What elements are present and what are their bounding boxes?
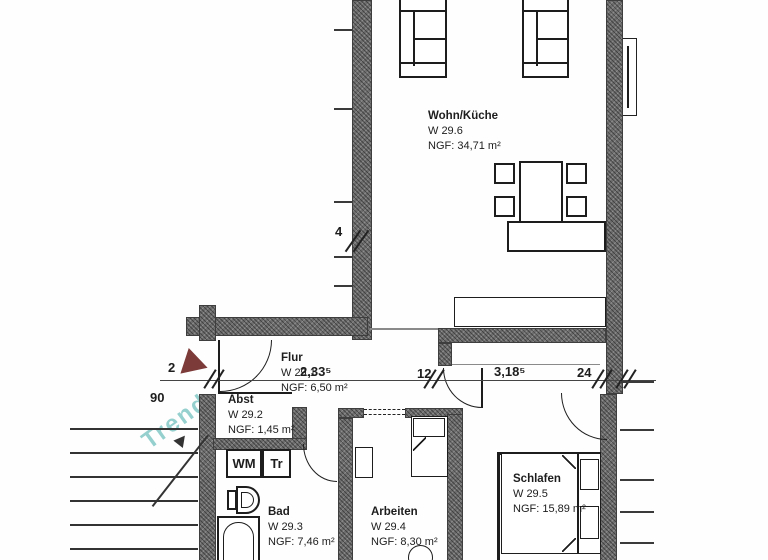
room-area: NGF: 34,71 m²	[428, 139, 501, 154]
floor-plan: Trend 2 90 2,33⁵ 12 3,18⁵ 24 4	[0, 0, 768, 560]
bad-door-arc	[303, 444, 337, 482]
stair-tread	[70, 500, 198, 502]
armchair-icon	[399, 0, 447, 78]
dim-wall-a: 12	[417, 366, 431, 381]
wall-tick	[334, 285, 352, 287]
room-code: W 29.2	[228, 408, 295, 423]
entry-door-arc	[220, 340, 272, 392]
wall-bad-arbeiten	[338, 418, 353, 560]
wall-left-lower	[199, 394, 216, 560]
sideboard	[507, 221, 606, 252]
room-label-wohnkueche: Wohn/Küche W 29.6 NGF: 34,71 m²	[428, 109, 501, 154]
entry-door-leaf	[218, 340, 220, 393]
stair-tread	[70, 476, 198, 478]
kitchen-counter	[454, 297, 606, 327]
room-name: Arbeiten	[371, 505, 438, 520]
dining-chair	[566, 163, 587, 184]
wall-tick	[620, 542, 654, 544]
room-area: NGF: 7,46 m²	[268, 535, 335, 550]
bed-fold	[413, 437, 426, 451]
wall-tick	[620, 381, 654, 383]
dimension-line	[160, 380, 656, 381]
room-name: Abst	[228, 393, 295, 408]
radiator-inner-line	[627, 46, 629, 108]
wall-tick	[334, 29, 352, 31]
wall-living-left	[352, 0, 372, 340]
wall-tick	[334, 256, 352, 258]
room-name: Wohn/Küche	[428, 109, 501, 124]
washing-machine-box: WM	[226, 449, 262, 478]
threshold-line	[370, 328, 438, 330]
dim-entry: 2	[168, 360, 175, 375]
room-label-arbeiten: Arbeiten W 29.4 NGF: 8,30 m²	[371, 505, 438, 550]
dim-corridor-width: 3,18⁵	[494, 364, 525, 379]
wall-tick	[620, 479, 654, 481]
dim-wall-b: 24	[577, 365, 591, 380]
wall-living-south	[438, 328, 606, 343]
wall-flur-south-1	[338, 408, 364, 418]
wall-tick	[620, 429, 654, 431]
schlafen-door-arc	[561, 393, 607, 440]
stair-tread	[70, 428, 198, 430]
corridor-door-leaf	[481, 368, 483, 408]
dashed-wall-line	[364, 409, 405, 410]
dryer-label: Tr	[270, 456, 282, 471]
wardrobe-arbeiten	[355, 447, 373, 478]
stair-tread	[70, 452, 198, 454]
room-area: NGF: 8,30 m²	[371, 535, 438, 550]
dining-table	[519, 161, 563, 223]
room-name: Schlafen	[513, 472, 586, 487]
bathtub-inner	[223, 522, 254, 560]
room-label-schlafen: Schlafen W 29.5 NGF: 15,89 m²	[513, 472, 586, 517]
room-area: NGF: 15,89 m²	[513, 502, 586, 517]
schlafen-wall-left	[497, 452, 500, 560]
wall-tick	[620, 511, 654, 513]
dryer-box: Tr	[262, 449, 291, 478]
dashed-wall-line	[364, 414, 405, 415]
wall-tick	[334, 201, 352, 203]
entrance-arrow-icon	[180, 348, 211, 381]
wall-left-above-entry	[199, 305, 216, 341]
dining-chair	[566, 196, 587, 217]
dining-chair	[494, 163, 515, 184]
room-label-abst: Abst W 29.2 NGF: 1,45 m²	[228, 393, 295, 438]
dim-stair: 90	[150, 390, 164, 405]
dining-chair	[494, 196, 515, 217]
room-name: Bad	[268, 505, 335, 520]
room-code: W 29.3	[268, 520, 335, 535]
wall-tick	[334, 108, 352, 110]
corridor-door-arc	[443, 368, 482, 408]
bed-fold	[562, 538, 576, 552]
washing-machine-label: WM	[232, 456, 255, 471]
armchair-icon	[522, 0, 569, 78]
room-code: W 29.4	[371, 520, 438, 535]
room-name: Flur	[281, 351, 348, 366]
bed-fold	[562, 455, 576, 469]
room-code: W 29.6	[428, 124, 501, 139]
room-label-bad: Bad W 29.3 NGF: 7,46 m²	[268, 505, 335, 550]
bed-arbeiten-pillow	[413, 418, 445, 437]
dim-window: 4	[335, 224, 342, 239]
wall-arbeiten-schlafen	[447, 414, 463, 560]
stair-tread	[70, 524, 198, 526]
room-area: NGF: 1,45 m²	[228, 423, 295, 438]
wall-stub-corridor	[438, 343, 452, 366]
room-code: W 29.5	[513, 487, 586, 502]
wall-right-upper	[606, 0, 623, 394]
radiator-icon	[623, 38, 637, 116]
room-code: W 29.1	[281, 366, 348, 381]
stair-tread	[70, 548, 198, 550]
room-label-flur: Flur W 29.1 NGF: 6,50 m²	[281, 351, 348, 396]
